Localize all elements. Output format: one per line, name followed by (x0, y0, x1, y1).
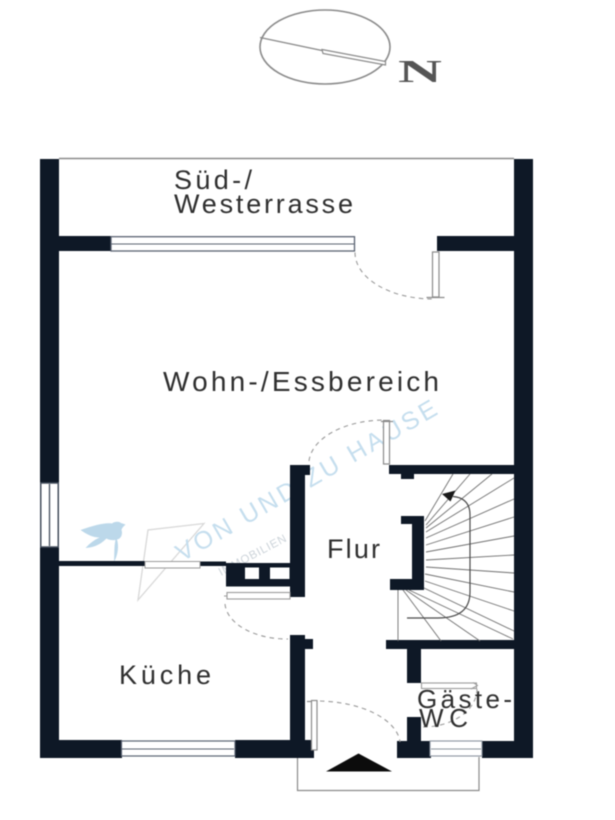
svg-text:VON UND ZU HAUSE: VON UND ZU HAUSE (171, 393, 445, 567)
svg-text:WC: WC (419, 703, 468, 733)
svg-text:Westerrasse: Westerrasse (174, 189, 353, 219)
svg-text:Flur: Flur (327, 534, 380, 564)
svg-text:N: N (398, 54, 442, 90)
svg-text:Wohn-/Essbereich: Wohn-/Essbereich (163, 366, 439, 397)
svg-text:Küche: Küche (119, 660, 211, 690)
